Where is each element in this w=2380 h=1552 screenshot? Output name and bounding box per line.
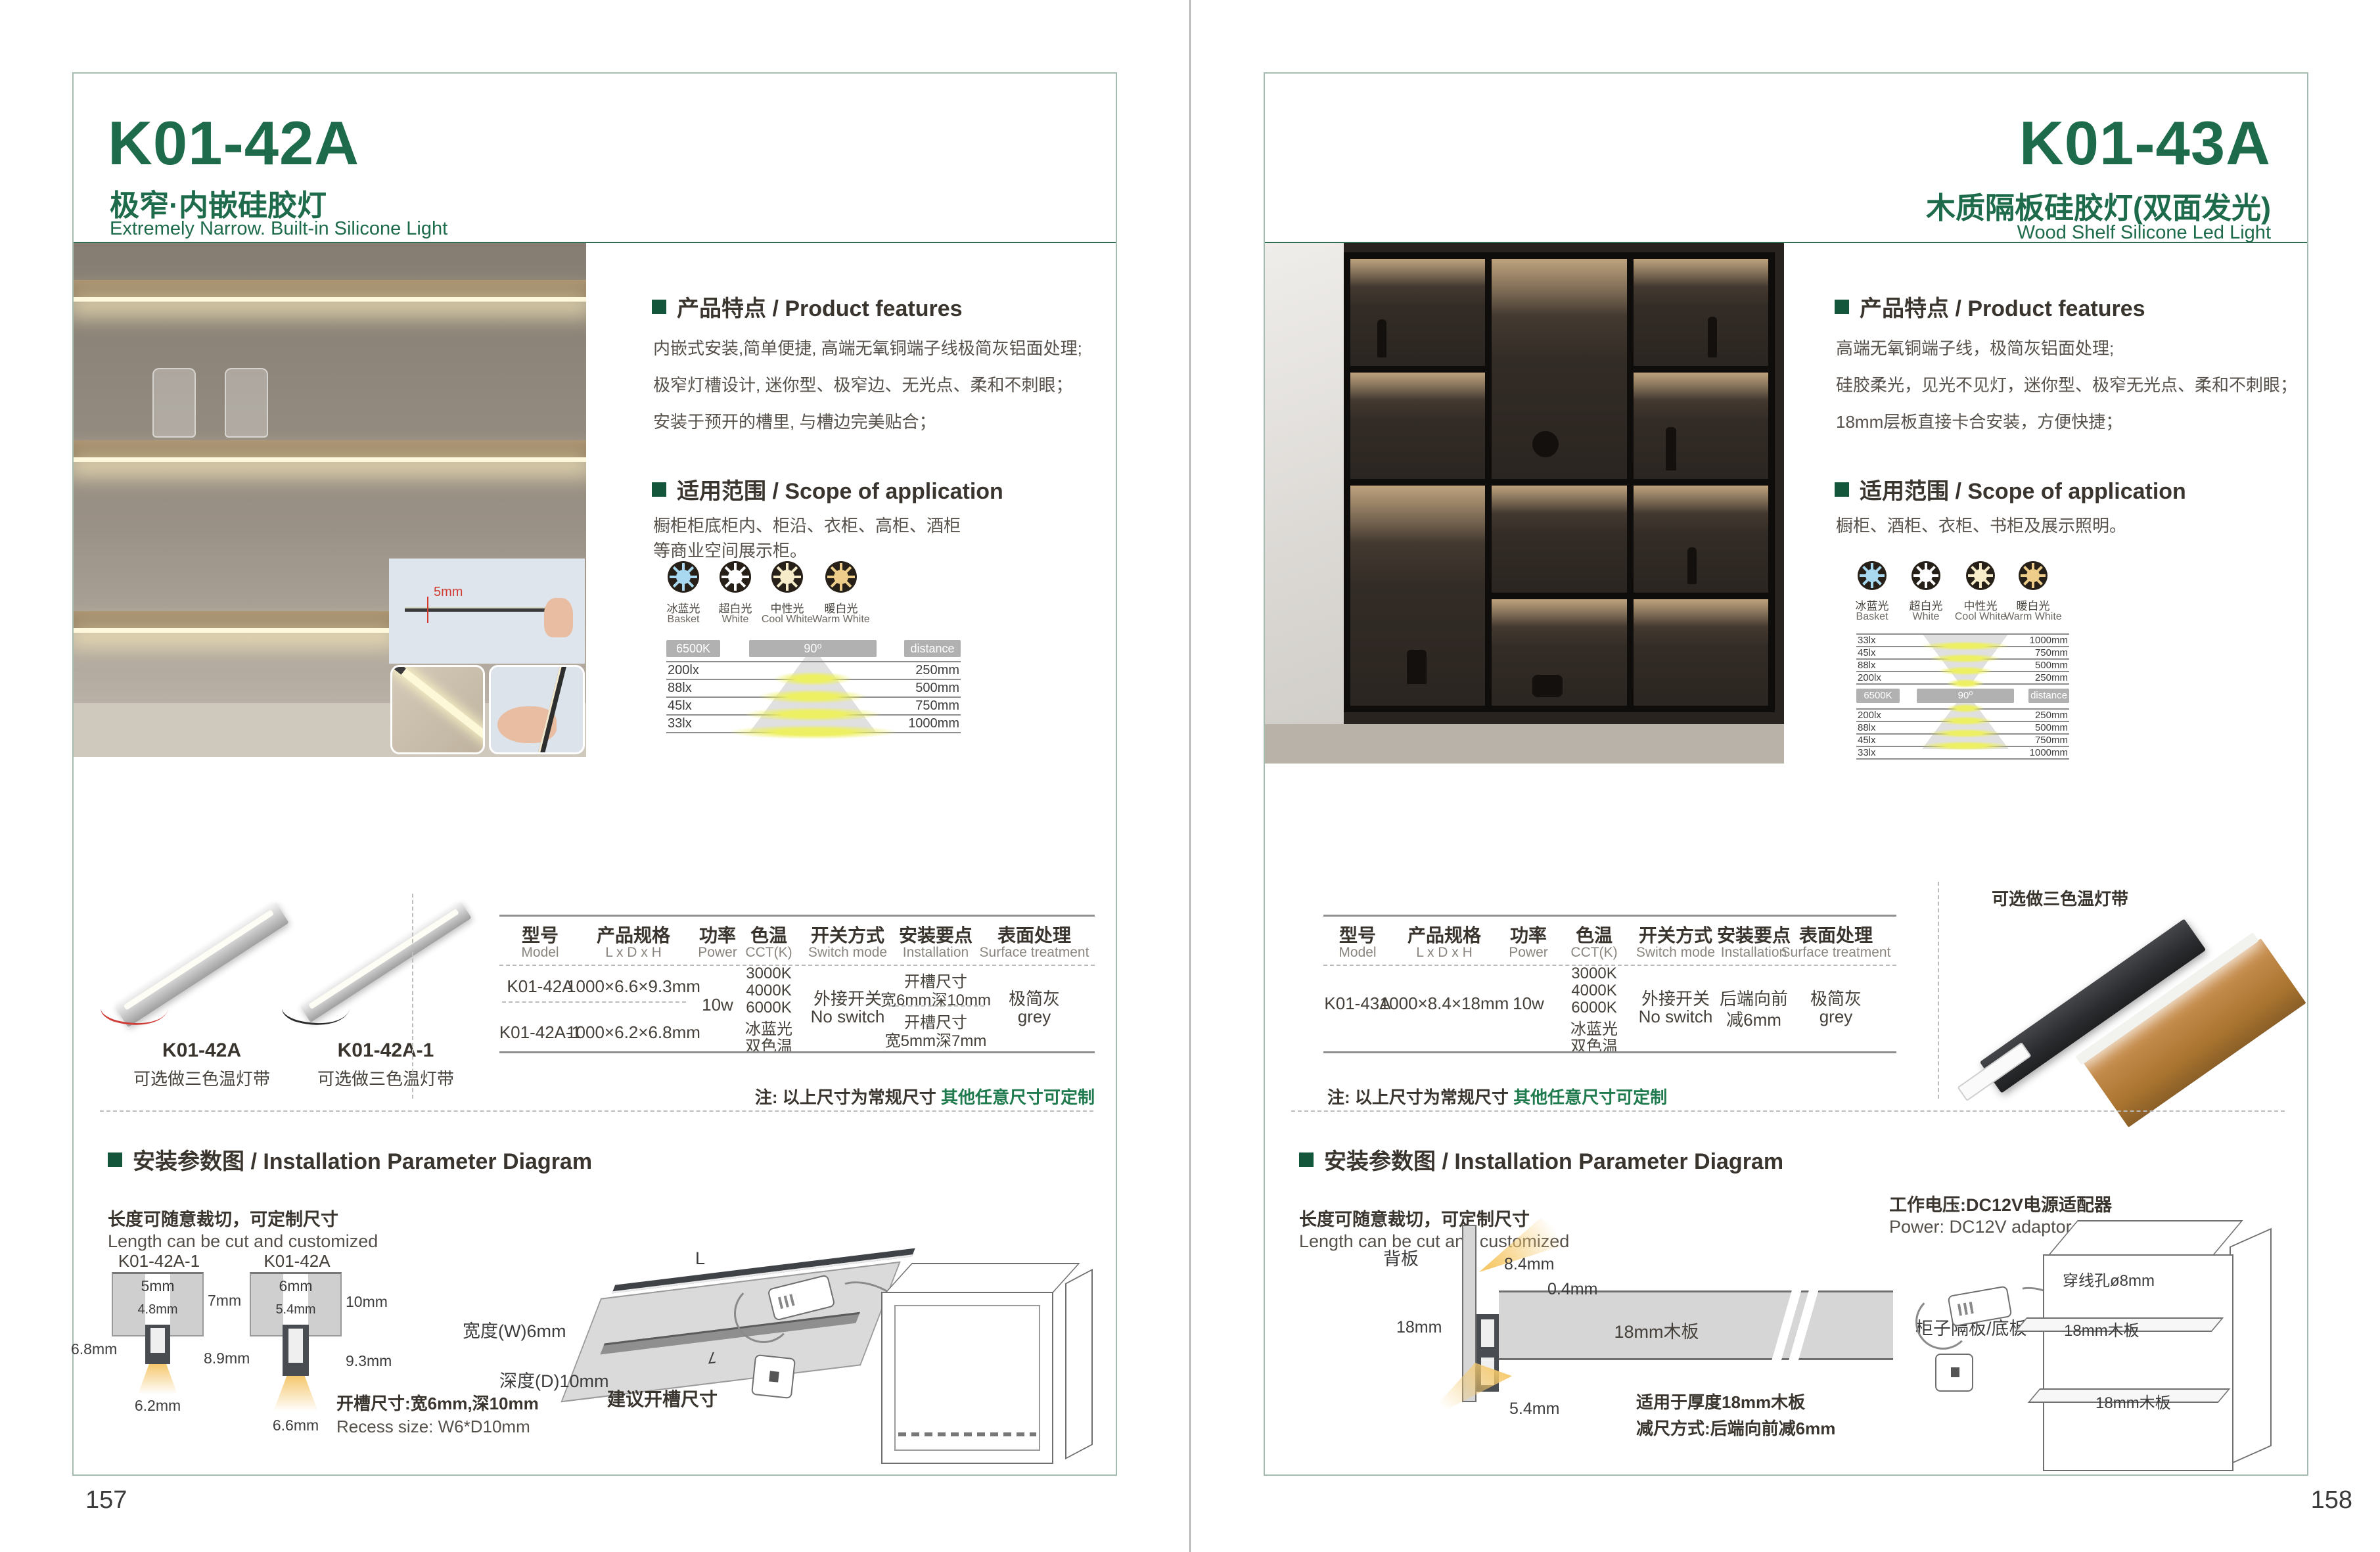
page-subtitle-en: Wood Shelf Silicone Led Light (2017, 222, 2271, 244)
cabinet-opening (894, 1305, 1040, 1451)
light-pool (773, 672, 852, 686)
recess-size-cn: 开槽尺寸:宽6mm,深10mm (336, 1390, 539, 1415)
cell-surface-en: grey (988, 1007, 1080, 1027)
product-note: 可选做三色温灯带 (1975, 886, 2145, 910)
glowing-strip (392, 665, 485, 754)
chart-bar-angle: 90⁰ (749, 640, 877, 657)
profile-cross-section (283, 1325, 309, 1376)
chart-bar-angle: 90⁰ (1917, 689, 2014, 703)
profile-slot (288, 1329, 303, 1363)
feature-line: 内嵌式安装,简单便捷, 高端无氧铜端子线极简灰铝面处理; (653, 335, 1082, 359)
lux-value: 200lx (1858, 672, 1881, 683)
length-label: L (695, 1248, 705, 1269)
chart-gridline (1856, 758, 2069, 760)
cabinet-compartment (1350, 259, 1485, 366)
cabinet-compartment (1634, 599, 1768, 706)
light-pool (1938, 666, 1993, 675)
section-title: 安装参数图 / Installation Parameter Diagram (1324, 1143, 1783, 1175)
table-rule-top (499, 915, 1095, 917)
feature-line: 极窄灯槽设计, 迷你型、极窄边、无光点、柔和不刺眼； (653, 372, 1072, 396)
product-photo-K01-42A-1 (294, 892, 478, 1036)
cell-size: 1000×6.2×6.8mm (548, 1022, 719, 1043)
power-cord (1915, 1294, 1971, 1350)
section-title: 产品特点 / Product features (1860, 290, 2145, 323)
distance-value: 500mm (2010, 722, 2068, 733)
page-number-left: 157 (85, 1486, 127, 1515)
page-fold-divider (1189, 0, 1191, 1552)
page-subtitle-cn: 木质隔板硅胶灯(双面发光) (1926, 184, 2271, 227)
dim-depth: 10mm (346, 1293, 388, 1311)
dim-0-4: 0.4mm (1547, 1280, 1597, 1299)
cabinet-compartment (1634, 486, 1768, 593)
light-pool (1929, 729, 2002, 738)
distance-value: 750mm (882, 698, 959, 714)
hero-photo-display-cabinet (1265, 243, 1784, 764)
lux-value: 88lx (1858, 722, 1876, 733)
shelf-light-strip (74, 297, 586, 302)
cell-surface-en: grey (1790, 1007, 1882, 1027)
led-strip-dashes (898, 1432, 1036, 1436)
cct-icon-cool-white (1966, 561, 1995, 590)
light-beam (138, 1364, 177, 1394)
profile-cross-section (145, 1325, 170, 1364)
cell-cct: 4000K (1555, 982, 1634, 1000)
hero-photo-shelf-lighting: 5mm (74, 243, 586, 757)
cabinet-top (884, 1263, 1080, 1293)
lux-value: 45lx (1858, 647, 1876, 658)
shelf-light-strip (74, 628, 392, 633)
cct-icon-warm-white (825, 561, 857, 593)
floor (1265, 724, 1784, 764)
inset-photo-thickness: 5mm (389, 559, 585, 664)
chart-bar-cct: 6500K (1856, 689, 1900, 703)
row-divider (502, 1001, 686, 1003)
cct-label-en: Warm White (1997, 611, 2069, 623)
col-header-surface: 表面处理 (969, 921, 1100, 947)
distance-value: 1000mm (2010, 635, 2068, 646)
cell-size: 1000×8.4×18mm (1365, 993, 1523, 1014)
bottle (1377, 319, 1386, 357)
section-divider (1291, 1110, 2285, 1112)
light-pool (728, 725, 898, 739)
sun-core (728, 570, 743, 584)
chart-gridline (666, 661, 961, 662)
cct-icon-white (1911, 561, 1940, 590)
page-subtitle-en: Extremely Narrow. Built-in Silicone Ligh… (110, 218, 447, 240)
distance-value: 500mm (2010, 660, 2068, 671)
section-product-features: 产品特点 / Product features (1835, 290, 2145, 323)
sun-core (1919, 569, 1933, 582)
bottle (1687, 547, 1697, 584)
hand (544, 598, 573, 637)
shelf-board (74, 440, 586, 457)
note-text: 注: 以上尺寸为常规尺寸 (755, 1087, 941, 1107)
sun-core (1865, 569, 1879, 582)
dimension-line (427, 597, 428, 623)
plug-prong (769, 1371, 779, 1382)
lux-value: 88lx (668, 681, 692, 696)
board-width-label: 宽度(W)6mm (463, 1317, 566, 1342)
note-highlight: 其他任意尺寸可定制 (941, 1087, 1095, 1107)
dim-18: 18mm (1396, 1318, 1442, 1337)
recess-size-en: Recess size: W6*D10mm (336, 1417, 530, 1437)
catalog-spread: K01-42A 极窄·内嵌硅胶灯 Extremely Narrow. Built… (0, 0, 2380, 1552)
scope-line: 橱柜、酒柜、衣柜、书柜及展示照明。 (1836, 513, 2126, 537)
lux-value: 45lx (1858, 735, 1876, 746)
col-header-surface-en: Surface treatment (1777, 945, 1895, 961)
light-pool (1938, 716, 1993, 725)
lux-value: 33lx (1858, 747, 1876, 758)
product-name: K01-42A (110, 1039, 294, 1062)
product-photo-K01-42A (110, 892, 294, 1036)
profile-slot (1481, 1319, 1494, 1347)
chart-bar-distance: distance (2028, 689, 2069, 703)
lux-value: 88lx (1858, 660, 1876, 671)
wire-hole-label: 穿线孔ø8mm (2063, 1267, 2155, 1290)
section-installation: 安装参数图 / Installation Parameter Diagram (1299, 1143, 1783, 1175)
diagram-title: K01-42A-1 (100, 1251, 218, 1271)
back-panel-label: 背板 (1383, 1244, 1419, 1270)
cabinet-compartment (1350, 486, 1485, 706)
inset-photo-recessed-strip (390, 665, 485, 754)
fit-note-1: 适用于厚度18mm木板 (1636, 1389, 1805, 1413)
lux-value: 45lx (668, 698, 692, 714)
board-label: 18mm木板 (1578, 1317, 1735, 1343)
decor-item (1532, 431, 1559, 457)
section-title: 适用范围 / Scope of application (1860, 473, 2186, 505)
cut-note-en: Length can be cut and customized (108, 1231, 378, 1252)
dimension-label: 5mm (434, 585, 463, 600)
sun-core (1974, 569, 1987, 582)
light-pool (1946, 679, 1984, 688)
page-title: K01-42A (108, 108, 359, 179)
cct-icon-ice-blue (668, 561, 699, 593)
decor-item (1407, 650, 1427, 684)
lux-value: 200lx (668, 663, 699, 678)
cabinet-illustration: 穿线孔ø8mm 18mm木板 18mm木板 (2040, 1220, 2303, 1503)
shelf-light-strip (74, 457, 586, 462)
shelf-board (74, 280, 586, 297)
dim-height: 6.8mm (71, 1340, 109, 1358)
sun-core (676, 570, 691, 584)
power-cord (734, 1284, 793, 1343)
cct-icon-white (720, 561, 751, 593)
dim-depth: 7mm (208, 1292, 241, 1310)
distance-value: 250mm (2010, 710, 2068, 721)
section-scope: 适用范围 / Scope of application (1835, 473, 2186, 505)
distance-value: 750mm (2010, 735, 2068, 746)
section-title: 适用范围 / Scope of application (677, 473, 1003, 505)
lux-value: 200lx (1858, 710, 1881, 721)
product-note: 可选做三色温灯带 (110, 1066, 294, 1090)
cabinet-illustration (879, 1263, 1095, 1490)
dim-slot-width: 6mm (250, 1277, 342, 1295)
cabinet-compartment (1634, 373, 1768, 480)
custom-size-note: 注: 以上尺寸为常规尺寸 其他任意尺寸可定制 (1327, 1084, 1667, 1108)
cabinet-compartment (1350, 373, 1485, 480)
power-label-cn: 工作电压:DC12V电源适配器 (1889, 1191, 2112, 1216)
cabinet-side (1065, 1269, 1093, 1459)
recess-slot (600, 1312, 860, 1355)
cabinet-side (2230, 1228, 2272, 1465)
cabinet-compartment (1492, 486, 1626, 593)
dim-slot-width: 5mm (112, 1277, 204, 1295)
page-number-right: 158 (2260, 1486, 2352, 1515)
bottle (1708, 317, 1717, 357)
note-text: 注: 以上尺寸为常规尺寸 (1327, 1087, 1513, 1107)
dim-8-4: 8.4mm (1504, 1255, 1554, 1274)
section-product-features: 产品特点 / Product features (652, 290, 963, 323)
light-pool (1921, 641, 2010, 650)
chart-bar-distance: distance (904, 640, 961, 657)
cct-icon-ice-blue (1858, 561, 1887, 590)
diagram-title: K01-42A (238, 1251, 356, 1271)
dim-5-4: 5.4mm (1509, 1400, 1559, 1419)
note-highlight: 其他任意尺寸可定制 (1513, 1087, 1667, 1107)
cell-size: 1000×6.6×9.3mm (548, 976, 719, 997)
shelf-label: 18mm木板 (2095, 1390, 2171, 1413)
row-divider (888, 1005, 984, 1007)
lux-value: 33lx (668, 716, 692, 731)
cell-install: 宽5mm深7mm (863, 1028, 1008, 1051)
page-left: K01-42A 极窄·内嵌硅胶灯 Extremely Narrow. Built… (72, 72, 1117, 1476)
cct-icon-cool-white (771, 561, 803, 593)
inset-photo-hand-profile (489, 665, 585, 754)
dim-bottom: 6.2mm (112, 1397, 204, 1415)
bottle (1666, 427, 1676, 470)
chart-bar-cct: 6500K (666, 640, 720, 657)
cell-power: 10w (1505, 993, 1551, 1014)
profile-slot (150, 1328, 165, 1353)
frosted-container (225, 368, 268, 438)
sun-core (2026, 569, 2040, 582)
cell-cct: 3000K (729, 965, 808, 983)
dim-inner-width: 4.8mm (112, 1302, 204, 1317)
cell-cct: 3000K (1555, 965, 1634, 983)
section-divider (100, 1110, 1093, 1112)
distance-value: 500mm (882, 681, 959, 696)
section-installation: 安装参数图 / Installation Parameter Diagram (108, 1143, 592, 1175)
product-photo-K01-43A (1981, 908, 2283, 1171)
section-title: 产品特点 / Product features (677, 290, 963, 323)
distance-value: 250mm (2010, 672, 2068, 683)
sun-core (834, 570, 848, 584)
cct-label-en: Warm White (805, 614, 877, 626)
cell-cct: 6000K (1555, 999, 1634, 1017)
cabinet-compartment (1492, 259, 1626, 479)
vertical-divider (1938, 882, 1939, 1099)
table-rule-top (1323, 915, 1896, 917)
board-caption: 建议开槽尺寸 (607, 1385, 718, 1411)
length-label: L (705, 1348, 721, 1369)
lux-value: 33lx (1858, 635, 1876, 646)
cabinet-compartment (1634, 259, 1768, 366)
sun-core (780, 570, 794, 584)
page-right: K01-43A 木质隔板硅胶灯(双面发光) Wood Shelf Silicon… (1264, 72, 2308, 1476)
vertical-divider (412, 894, 413, 1099)
wall-plug (751, 1354, 796, 1399)
decor-item (1532, 675, 1563, 697)
cut-note-cn: 长度可随意裁切，可定制尺寸 (1299, 1205, 1530, 1231)
wall-plug (1935, 1354, 1973, 1392)
dim-height2: 9.3mm (346, 1352, 392, 1370)
cabinet-top (2048, 1220, 2243, 1256)
light-beam (273, 1376, 318, 1411)
cabinet-compartment (1492, 599, 1626, 706)
cct-icon-warm-white (2019, 561, 2048, 590)
product-note: 可选做三色温灯带 (294, 1066, 478, 1090)
scope-line: 等商业空间展示柜。 (653, 537, 807, 562)
section-title: 安装参数图 / Installation Parameter Diagram (133, 1143, 592, 1175)
distance-value: 1000mm (2010, 747, 2068, 758)
plug-prong (1951, 1367, 1959, 1377)
display-cabinet (1344, 252, 1775, 712)
dim-bottom: 6.6mm (250, 1417, 342, 1434)
col-header-surface-en: Surface treatment (969, 945, 1100, 961)
light-pool (1929, 654, 2002, 663)
feature-line: 安装于预开的槽里, 与槽边完美贴合； (653, 409, 936, 433)
distance-value: 250mm (882, 663, 959, 678)
marble-wall (1265, 243, 1344, 764)
table-rule-bottom (1323, 1051, 1896, 1053)
feature-line: 18mm层板直接卡合安装，方便快捷； (1836, 409, 2122, 433)
distance-value: 750mm (2010, 647, 2068, 658)
col-header-surface: 表面处理 (1777, 921, 1895, 947)
fit-note-2: 减尺方式:后端向前减6mm (1636, 1415, 1835, 1440)
custom-size-note: 注: 以上尺寸为常规尺寸 其他任意尺寸可定制 (665, 1084, 1095, 1108)
cut-note-cn: 长度可随意裁切，可定制尺寸 (108, 1205, 338, 1231)
scope-line: 橱柜柜底柜内、柜沿、衣柜、高柜、酒柜 (653, 513, 961, 537)
section-scope: 适用范围 / Scope of application (652, 473, 1003, 505)
light-pool (1946, 704, 1984, 713)
product-name: K01-42A-1 (294, 1039, 478, 1062)
feature-line: 硅胶柔光，见光不见灯，迷你型、极窄无光点、柔和不刺眼； (1836, 372, 2297, 396)
feature-line: 高端无氧铜端子线，极简灰铝面处理; (1836, 335, 2114, 359)
shelf-board (74, 611, 392, 628)
shelf-label: 18mm木板 (2064, 1317, 2140, 1340)
dim-height: 8.9mm (204, 1350, 246, 1367)
distance-value: 1000mm (882, 716, 959, 731)
table-rule-bottom (499, 1051, 1095, 1053)
frosted-container (152, 368, 196, 438)
wood-board-section: 18mm木板 (1499, 1290, 1893, 1360)
board-depth-label: 深度(D)10mm (499, 1367, 609, 1392)
page-title: K01-43A (2019, 108, 2271, 179)
dim-inner-width: 5.4mm (250, 1302, 342, 1317)
light-pool (744, 707, 882, 721)
light-pool (758, 689, 867, 704)
light-pool (1921, 741, 2010, 750)
